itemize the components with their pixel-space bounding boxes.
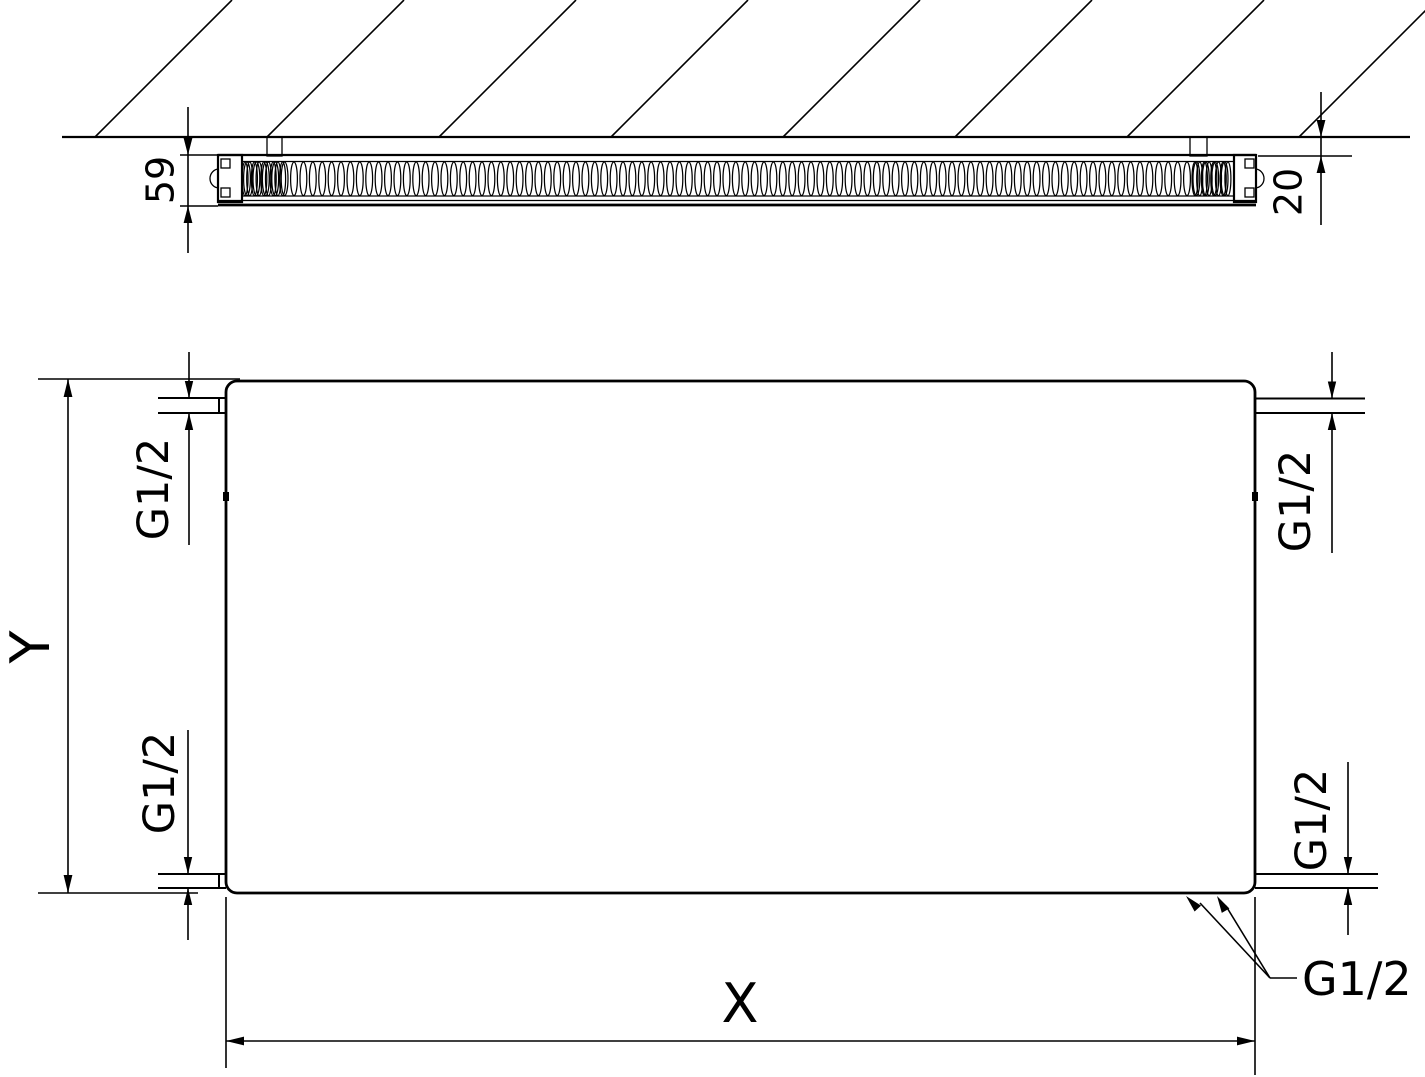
g12-label-top-right: G1/2: [1271, 450, 1321, 553]
seam-tick-left: [223, 492, 229, 501]
dimension-g12-top-left: G1/2: [129, 352, 193, 545]
mounting-bracket-left: [267, 137, 282, 156]
g12-label-bottom-callout: G1/2: [1302, 952, 1412, 1006]
top-view: 59 20: [62, 0, 1425, 253]
g12-label-bottom-right: G1/2: [1287, 769, 1337, 872]
drawing-canvas: 59 20: [0, 0, 1425, 1077]
dimension-depth-59: 59: [138, 107, 218, 253]
depth-dimension-label: 59: [138, 156, 182, 204]
g12-label-top-left: G1/2: [129, 438, 179, 541]
dimension-width-X: X: [226, 897, 1255, 1075]
front-view: G1/2 G1/2 G1/2 G1/2: [0, 352, 1412, 1075]
seam-tick-right: [1252, 492, 1258, 501]
wall-hatching: [95, 0, 1425, 137]
end-cap-left: [210, 155, 242, 202]
connection-stub-top-left: [158, 398, 226, 413]
connection-stub-top-right: [1255, 399, 1365, 414]
radiator-front-panel: [226, 381, 1255, 893]
dimension-g12-bottom-right: G1/2: [1287, 762, 1352, 935]
connection-stub-bottom-right: [1255, 874, 1378, 888]
dimension-g12-bottom-left: G1/2: [135, 730, 192, 940]
wall-gap-dimension-label: 20: [1266, 168, 1310, 216]
radiator-technical-drawing: 59 20: [0, 0, 1425, 1077]
dimension-g12-top-right: G1/2: [1271, 352, 1336, 553]
dimension-wall-gap-20: 20: [1258, 92, 1352, 225]
height-dimension-label: Y: [0, 630, 62, 665]
connection-stub-bottom-left: [158, 874, 226, 888]
end-cap-right: [1234, 155, 1264, 202]
callout-bottom-connections: G1/2: [1186, 896, 1412, 1006]
mounting-bracket-right: [1190, 137, 1207, 156]
dimension-height-Y: Y: [0, 379, 240, 893]
g12-label-bottom-left: G1/2: [135, 732, 185, 835]
width-dimension-label: X: [722, 972, 759, 1035]
radiator-top-view: [210, 137, 1264, 205]
convector-fin-pattern: [242, 162, 1231, 196]
